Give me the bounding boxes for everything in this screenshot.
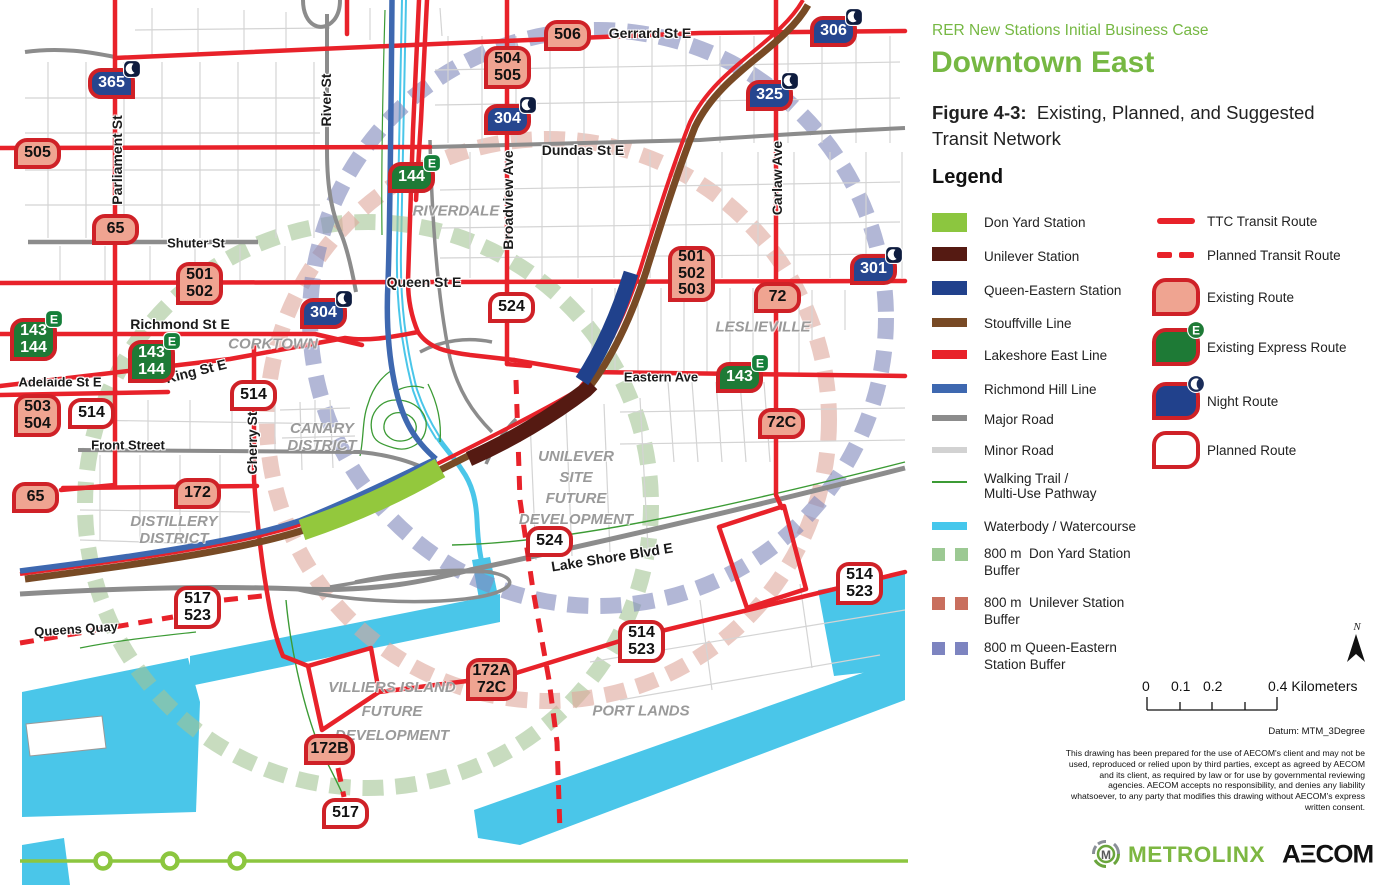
svg-text:M: M: [1101, 848, 1111, 862]
svg-text:E: E: [168, 335, 176, 349]
svg-text:E: E: [1192, 324, 1200, 338]
svg-text:E: E: [756, 357, 764, 371]
svg-text:E: E: [428, 157, 436, 171]
svg-text:E: E: [50, 313, 58, 327]
svg-text:N: N: [1352, 621, 1361, 633]
